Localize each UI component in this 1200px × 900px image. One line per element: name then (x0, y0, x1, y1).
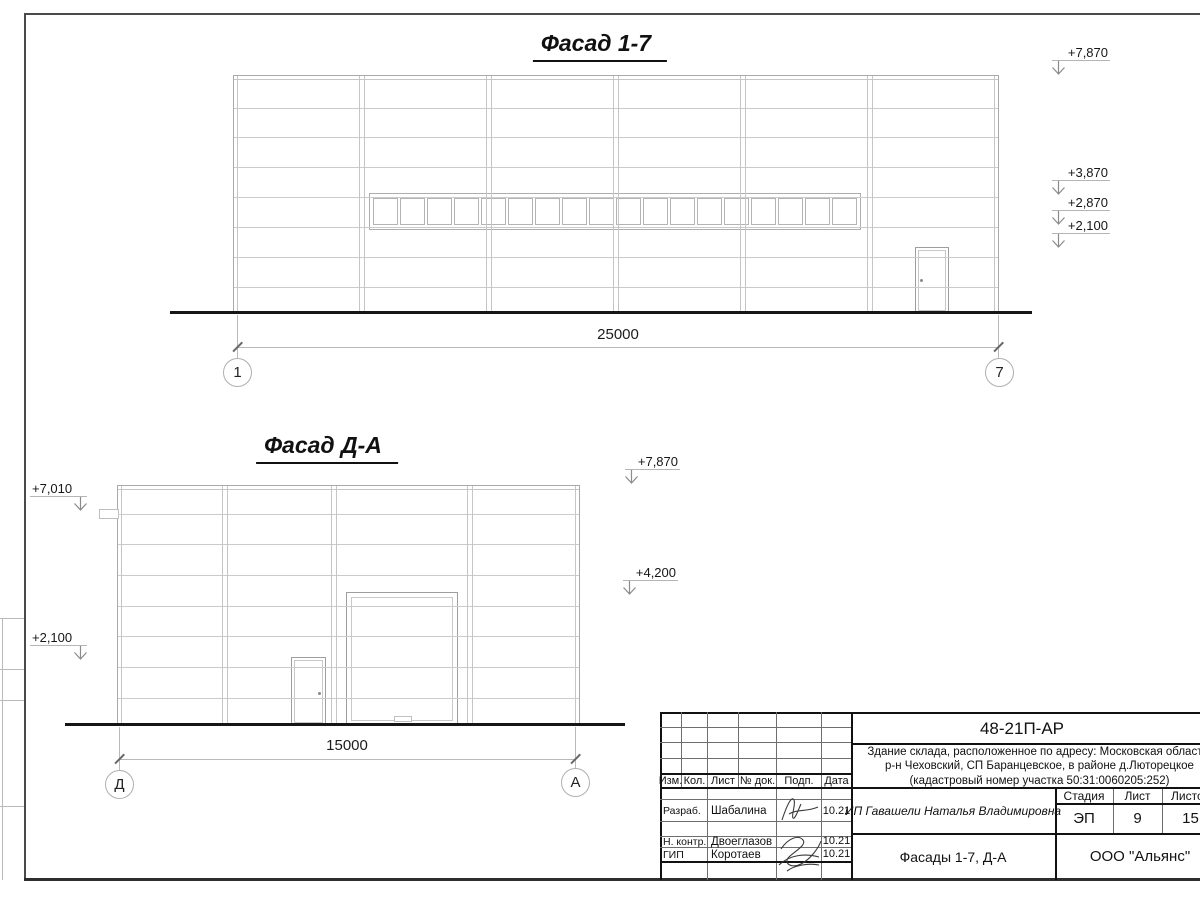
panel-joint-line (118, 698, 579, 699)
window-pane (508, 198, 533, 225)
axis-bubble-1: 1 (223, 358, 252, 387)
column-line (222, 486, 228, 725)
level-arrow-icon (1052, 61, 1065, 76)
level-value: +3,870 (1068, 165, 1108, 180)
level-arrow-icon (1052, 211, 1065, 226)
level-value: +7,870 (638, 454, 678, 469)
dimension-line (237, 347, 999, 348)
window-pane (481, 198, 506, 225)
axis-bubble-d: Д (105, 770, 134, 799)
column-line (613, 76, 619, 313)
ground-line (170, 311, 1032, 314)
sheets-total: 15 (1162, 805, 1200, 832)
document-number: 48-21П-АР (851, 714, 1193, 743)
organization-name: ООО "Альянс" (1056, 835, 1200, 878)
facade-1-7-title: Фасад 1-7 (533, 30, 667, 62)
axis-label: Д (114, 776, 124, 793)
window-pane (697, 198, 722, 225)
ground-line (65, 723, 625, 726)
frame-left-line (24, 13, 26, 880)
column-line (867, 76, 873, 313)
col-podp: Подп. (777, 774, 821, 787)
signature (779, 794, 821, 826)
dimension-line (119, 759, 575, 760)
margin-divider (0, 700, 24, 701)
window-pane (751, 198, 776, 225)
extension-line (237, 315, 238, 358)
person-name: Шабалина (711, 802, 775, 820)
margin-outer-line (2, 618, 3, 880)
frame-bottom-line (24, 878, 1200, 881)
project-line: р-н Чеховский, СП Баранцевское, в районе… (852, 759, 1200, 773)
gate-threshold (394, 716, 412, 722)
axis-bubble-a: А (561, 768, 590, 797)
facade-d-a-elevation (117, 485, 580, 726)
column-line (359, 76, 365, 313)
project-description: Здание склада, расположенное по адресу: … (852, 745, 1200, 788)
col-izm: Изм. (660, 774, 681, 787)
level-value: +7,870 (1068, 45, 1108, 60)
frame-top-line (24, 13, 1200, 15)
window-pane (454, 198, 479, 225)
facade-d-a-title: Фасад Д-А (256, 432, 398, 464)
extension-line (575, 727, 576, 771)
project-line: (кадастровый номер участка 50:31:0060205… (852, 774, 1200, 788)
window-pane (805, 198, 830, 225)
sheet-title: Фасады 1-7, Д-А (853, 835, 1053, 878)
titleblock-row-line (660, 758, 851, 759)
drawing-sheet: Фасад 1-7 25000 1 7 +7,870 +3,870 +2,870… (0, 0, 1200, 900)
panel-joint-line (118, 606, 579, 607)
panel-joint-line (118, 636, 579, 637)
window-pane (832, 198, 857, 225)
sheet-label: Лист (1113, 789, 1162, 803)
stage-label: Стадия (1055, 789, 1113, 803)
door-handle (920, 279, 923, 282)
stage-value: ЭП (1055, 805, 1113, 832)
titleblock-row-line (660, 742, 851, 743)
window-pane (616, 198, 641, 225)
panel-joint-line (118, 575, 579, 576)
window-pane (400, 198, 425, 225)
level-value: +2,870 (1068, 195, 1108, 210)
col-list: Лист (708, 774, 738, 787)
client-name: ИП Гавашели Наталья Владимировна (853, 789, 1053, 832)
margin-divider (0, 669, 24, 670)
role-label: Н. контр. (663, 836, 707, 848)
titleblock-row-line (660, 821, 851, 822)
person-name: Двоеглазов (711, 836, 775, 848)
titleblock-left-border (660, 712, 662, 880)
axis-bubble-7: 7 (985, 358, 1014, 387)
extension-line (998, 315, 999, 358)
project-line: Здание склада, расположенное по адресу: … (852, 745, 1200, 759)
panel-joint-line (118, 514, 579, 515)
facade-1-7-elevation (233, 75, 999, 314)
level-arrow-icon (623, 581, 636, 596)
titleblock-vline (707, 712, 708, 880)
window-pane (535, 198, 560, 225)
column-line (740, 76, 746, 313)
date-value: 10.21 (822, 835, 851, 847)
sheet-number: 9 (1113, 805, 1162, 832)
level-arrow-icon (1052, 181, 1065, 196)
extension-line (119, 727, 120, 771)
canopy (99, 509, 119, 519)
margin-divider (0, 806, 24, 807)
door-handle (318, 692, 321, 695)
col-doc: № док. (739, 774, 776, 787)
level-arrow-icon (74, 646, 87, 661)
window-pane (589, 198, 614, 225)
col-kol: Кол. (682, 774, 707, 787)
window-pane (427, 198, 452, 225)
level-arrow-icon (1052, 234, 1065, 249)
axis-label: 1 (233, 364, 241, 381)
level-value: +2,100 (32, 630, 72, 645)
level-arrow-icon (74, 497, 87, 512)
dimension-value: 15000 (326, 737, 368, 754)
column-line (331, 486, 337, 725)
corner-column-line (237, 76, 238, 313)
gate-leaf (351, 597, 453, 721)
dimension-value: 25000 (597, 326, 639, 343)
level-value: +4,200 (636, 565, 676, 580)
corner-column-line (994, 76, 995, 313)
role-label: ГИП (663, 849, 707, 861)
window-pane (562, 198, 587, 225)
panel-joint-line (118, 544, 579, 545)
level-arrow-icon (625, 470, 638, 485)
column-line (467, 486, 473, 725)
axis-label: 7 (995, 364, 1003, 381)
sectional-gate (346, 592, 458, 726)
date-value: 10.21 (822, 848, 851, 860)
level-value: +7,010 (32, 481, 72, 496)
axis-label: А (570, 774, 580, 791)
role-label: Разраб. (663, 802, 707, 820)
signature (775, 831, 825, 876)
column-line (486, 76, 492, 313)
window-pane (670, 198, 695, 225)
person-name: Коротаев (711, 849, 775, 861)
col-date: Дата (822, 774, 851, 787)
titleblock-row-line (660, 727, 851, 728)
parapet-line (118, 489, 579, 490)
window-pane (373, 198, 398, 225)
window-pane (643, 198, 668, 225)
margin-divider (0, 618, 24, 619)
sheets-total-label: Листов (1162, 789, 1200, 803)
titleblock-row-line (660, 799, 851, 800)
window-pane (778, 198, 803, 225)
panel-joint-line (118, 667, 579, 668)
level-value: +2,100 (1068, 218, 1108, 233)
